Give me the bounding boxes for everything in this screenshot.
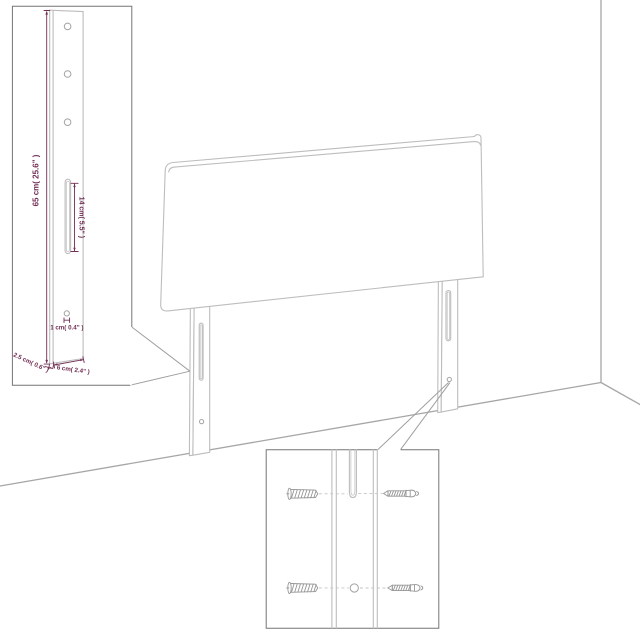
left-leg-screw-hole [200,420,204,424]
hardware-callout-line-left [378,383,449,450]
hardware-inset [266,450,439,628]
dimension-hole-label: 1 cm( 0.4" ) [50,325,83,332]
leg-detail-hole-3 [64,119,71,126]
leg-detail-callout-lines [130,327,190,385]
leg-detail-inset: 65 cm( 25.6" ) 14 cm( 5.5" ) 1 cm( 0.4" … [12,6,132,385]
leg-detail-hole-1 [64,23,71,30]
dimension-slot-label: 14 cm( 5.5" ) [78,197,85,238]
headboard-panel [161,135,484,311]
product-illustration: 65 cm( 25.6" ) 14 cm( 5.5" ) 1 cm( 0.4" … [0,0,640,640]
left-leg [189,300,209,456]
headboard-diagram-canvas: 65 cm( 25.6" ) 14 cm( 5.5" ) 1 cm( 0.4" … [0,0,640,640]
right-leg [438,275,458,413]
leg-detail-side-bottom-edge [50,363,53,364]
leg-detail-small-hole [64,311,69,316]
hardware-inset-background [266,450,439,628]
right-leg-screw-hole [447,377,451,381]
dimension-height-label: 65 cm( 25.6" ) [32,154,41,206]
headboard-panel-outline [161,135,484,311]
inset-hole [350,584,358,592]
leg-callout-line-lower [130,371,190,385]
leg-callout-line-upper [132,327,190,371]
floor-line-right [601,383,640,405]
leg-detail-hole-2 [64,71,71,78]
